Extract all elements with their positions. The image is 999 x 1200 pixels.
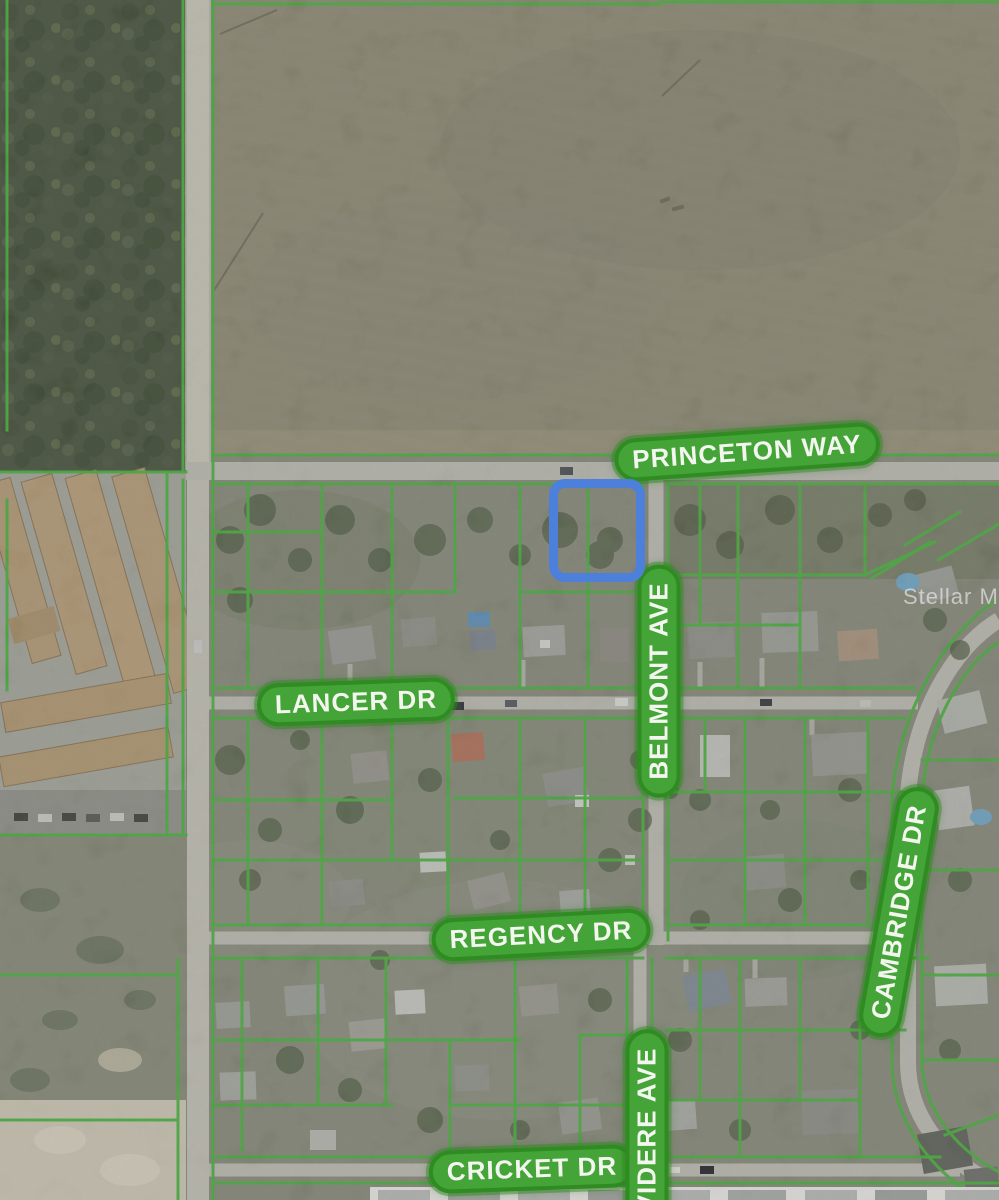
satellite-imagery	[0, 0, 999, 1200]
image-noise	[0, 0, 999, 1200]
street-label-lancer-dr: LANCER DR	[256, 677, 455, 727]
street-label-belmont-ave: BELMONT AVE	[638, 564, 681, 797]
highlighted-parcel	[549, 479, 645, 582]
street-label-cricket-dr: CRICKET DR	[428, 1144, 636, 1194]
watermark: Stellar MLS	[903, 584, 999, 610]
aerial-map: PRINCETON WAY LANCER DR BELMONT AVE REGE…	[0, 0, 999, 1200]
street-label-belvidere-ave: VIDERE AVE	[626, 1030, 669, 1200]
